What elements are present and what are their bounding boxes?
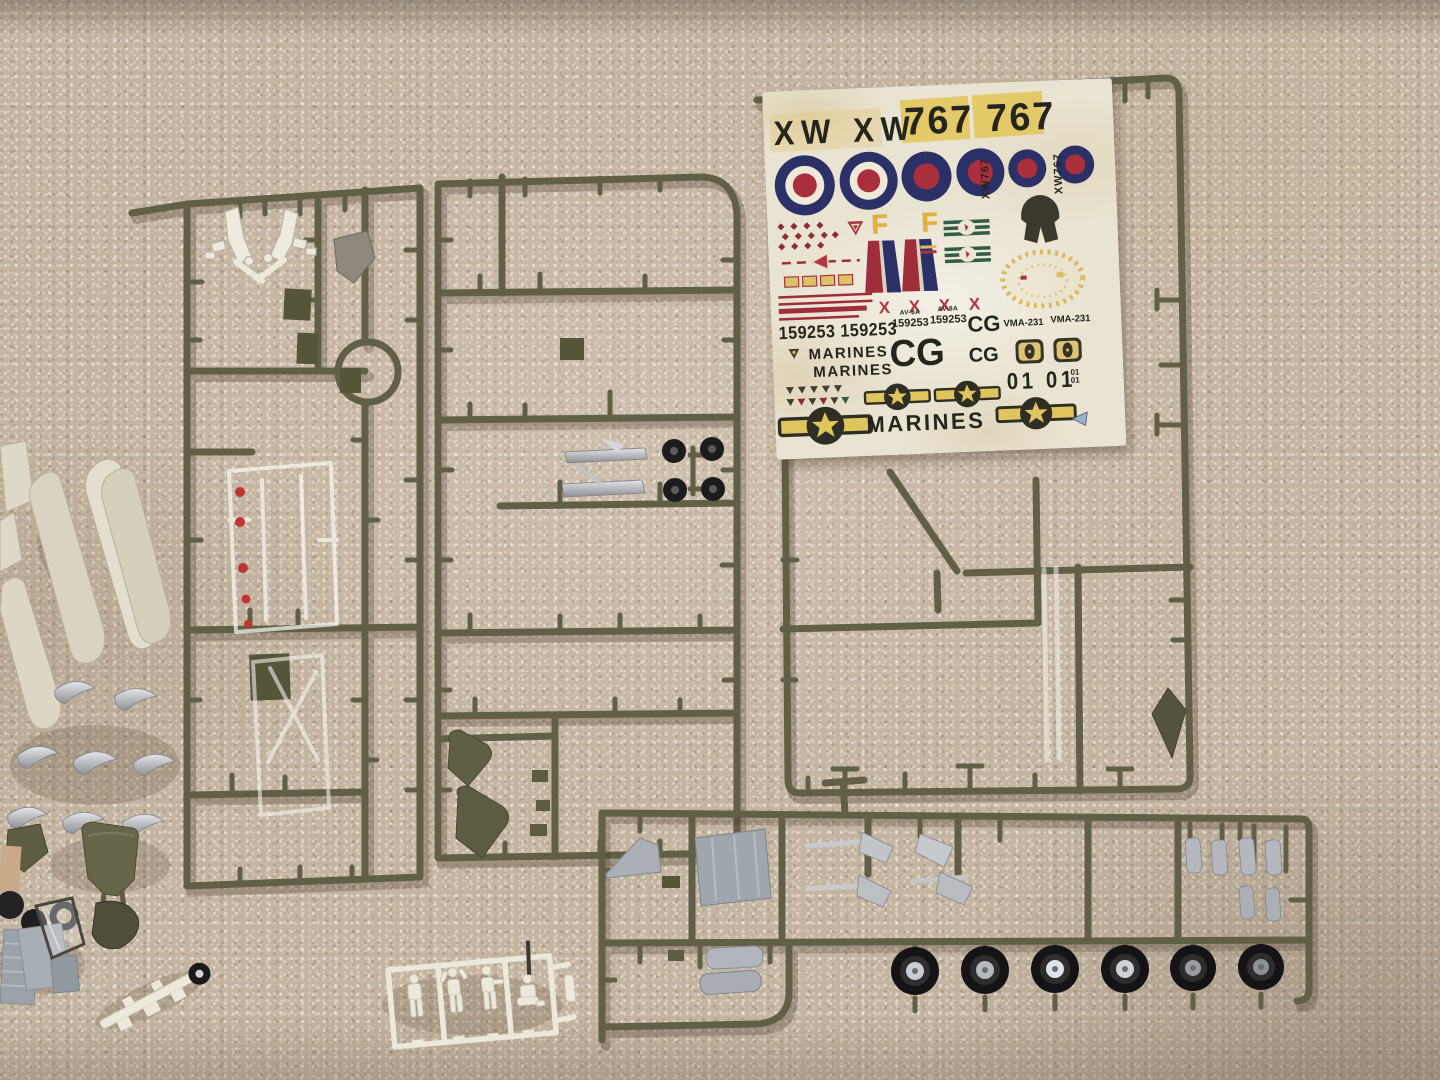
sprues-and-parts-layer	[0, 0, 1440, 1080]
decal-code-xw: XW XW	[773, 111, 918, 151]
olive-cones	[448, 730, 550, 858]
clear-strip-parts	[1044, 568, 1059, 760]
small-wheels	[662, 437, 725, 502]
decal-vma231: VMA-231	[1050, 314, 1090, 325]
decal-marines-large: MARINES	[866, 409, 986, 436]
decal-serial-small: 159253	[926, 313, 970, 326]
olive-fin-part	[1152, 688, 1186, 758]
decal-xw767-vertical: XW767	[979, 147, 992, 199]
decal-01-pair: 01 01	[1006, 368, 1076, 394]
decal-cg-large: CG	[889, 333, 946, 373]
tan-card-part	[0, 845, 22, 892]
decal-marines: MARINES	[808, 344, 888, 362]
seat-decal-cutout	[1020, 194, 1060, 243]
silver-gear-struts	[562, 438, 647, 497]
white-gear-leg	[258, 260, 284, 279]
stripe-decals	[778, 294, 873, 320]
warning-triangle	[847, 221, 864, 236]
molded-olive-plate	[560, 338, 584, 360]
decal-cg-medium: CG	[968, 345, 999, 366]
decal-sheet: XW XW 767 767 F F XW767 XW767 X X X X 15…	[762, 78, 1126, 460]
dark-stick-part	[526, 941, 531, 975]
decal-vma231: VMA-231	[1003, 318, 1043, 329]
decal-xw767-vertical: XW767	[1052, 142, 1065, 194]
diamond-markers	[777, 221, 839, 251]
intake-warning-triangle	[788, 349, 799, 359]
olive-intake-part	[82, 822, 139, 912]
decal-letters-f: F F	[871, 209, 952, 239]
rocket-pods	[1185, 837, 1282, 921]
decal-01-small: 01	[1071, 376, 1080, 384]
intake-ring-decal	[1002, 250, 1084, 307]
decal-marines: MARINES	[813, 362, 893, 380]
model-kit-photo: XW XW 767 767 F F XW767 XW767 X X X X 15…	[0, 0, 1440, 1080]
arrow-dash-decal	[782, 252, 861, 271]
rescue-badges	[1015, 337, 1082, 364]
olive-curved-part	[92, 901, 139, 948]
small-rect-decals	[784, 275, 852, 288]
decal-cg-small: CG	[967, 313, 1001, 336]
sprue-left	[132, 188, 424, 892]
decal-serials-large: 159253 159253	[778, 320, 897, 343]
sprue-bottom	[602, 780, 1313, 1046]
loose-tire	[0, 891, 24, 919]
sprue-middle	[438, 177, 741, 864]
triangle-markers	[786, 385, 850, 407]
decal-serial-767: 767 767	[904, 96, 1057, 141]
decal-serial-small-group: AV-8A 159253	[926, 306, 971, 326]
decal-01-small-group: 01 01	[1070, 368, 1080, 384]
